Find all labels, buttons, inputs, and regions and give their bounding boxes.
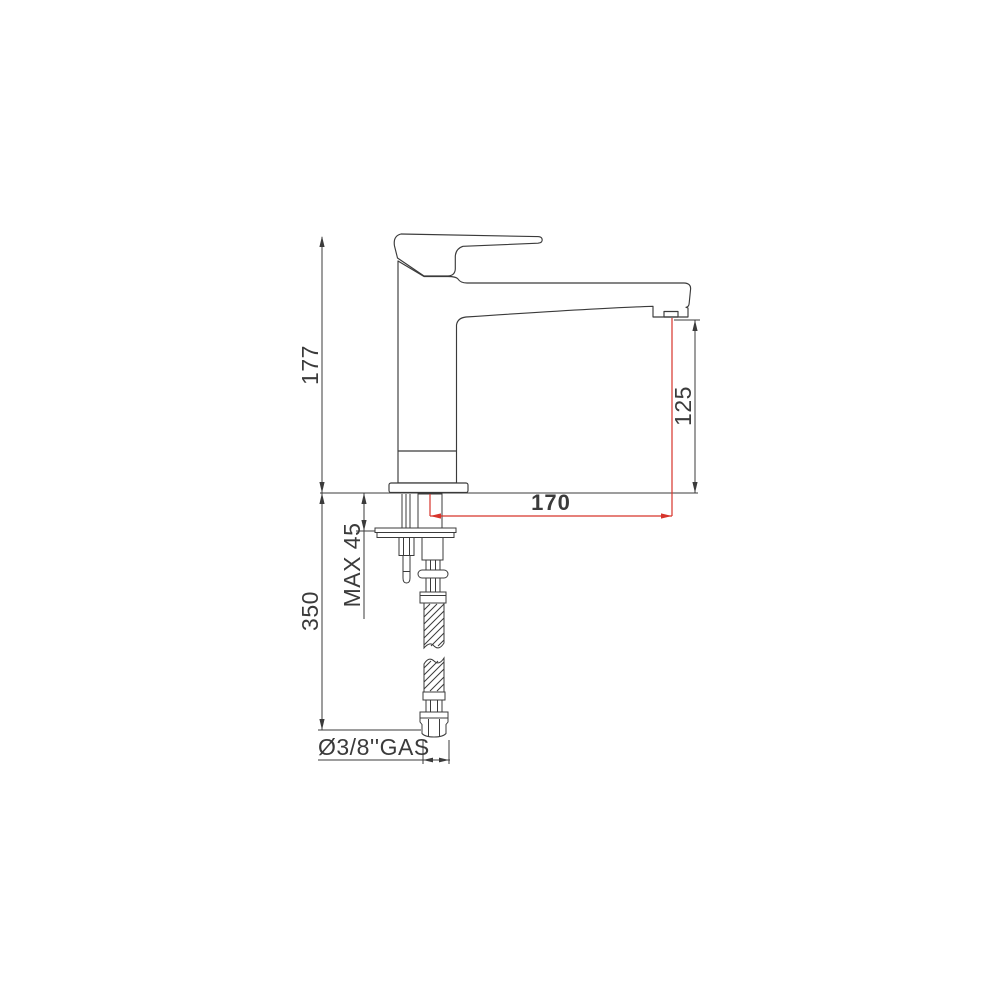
faucet-body-spout	[398, 261, 691, 483]
stud-tail	[403, 556, 410, 572]
arrow-down-icon	[319, 482, 324, 493]
label-under-counter-length: 350	[297, 591, 323, 631]
mounting-plate	[375, 528, 456, 538]
arrow-up-icon	[319, 493, 324, 504]
ribbed-neck-lower	[426, 578, 440, 592]
faucet	[389, 234, 691, 493]
label-total-height: 177	[297, 345, 323, 385]
escutcheon-base	[389, 483, 468, 493]
fitting-ribs	[426, 700, 442, 712]
arrow-right-icon	[439, 758, 449, 763]
dimension-labels: 177 350 MAX 45 125 170 Ø3/8''GAS	[297, 345, 696, 760]
ribbed-neck	[426, 560, 440, 570]
arrow-right-icon	[661, 513, 672, 518]
fitting-flange	[420, 712, 448, 718]
nut-body	[399, 538, 414, 556]
valve-block	[422, 538, 443, 561]
arrow-down-icon	[692, 482, 697, 493]
stud-nut	[399, 538, 414, 584]
label-connection-size: Ø3/8''GAS	[318, 734, 430, 760]
hose-outline	[424, 603, 444, 648]
arrow-up-icon	[319, 236, 324, 247]
stud-tip	[403, 572, 410, 584]
faucet-technical-drawing: 177 350 MAX 45 125 170 Ø3/8''GAS	[0, 0, 1000, 1000]
hose-coupling-nut	[420, 592, 446, 603]
arrow-up-icon	[361, 493, 366, 504]
label-spout-height: 125	[670, 386, 696, 426]
flex-hose-upper	[424, 603, 444, 648]
plate-top	[375, 528, 456, 533]
dimension-lines	[318, 236, 700, 764]
faucet-handle	[394, 234, 542, 276]
plate-bottom	[377, 533, 454, 538]
label-max-counter-thickness: MAX 45	[339, 523, 365, 608]
flex-hose-lower	[424, 658, 444, 692]
arrow-up-icon	[692, 320, 697, 331]
threaded-stud	[402, 494, 410, 528]
label-spout-reach: 170	[531, 490, 571, 515]
arrow-down-icon	[319, 719, 324, 730]
under-counter-assembly	[375, 494, 456, 737]
hose-end-fitting	[420, 692, 448, 737]
collar-flange	[418, 570, 448, 578]
valve-body	[418, 538, 448, 604]
fitting-band	[423, 692, 445, 700]
